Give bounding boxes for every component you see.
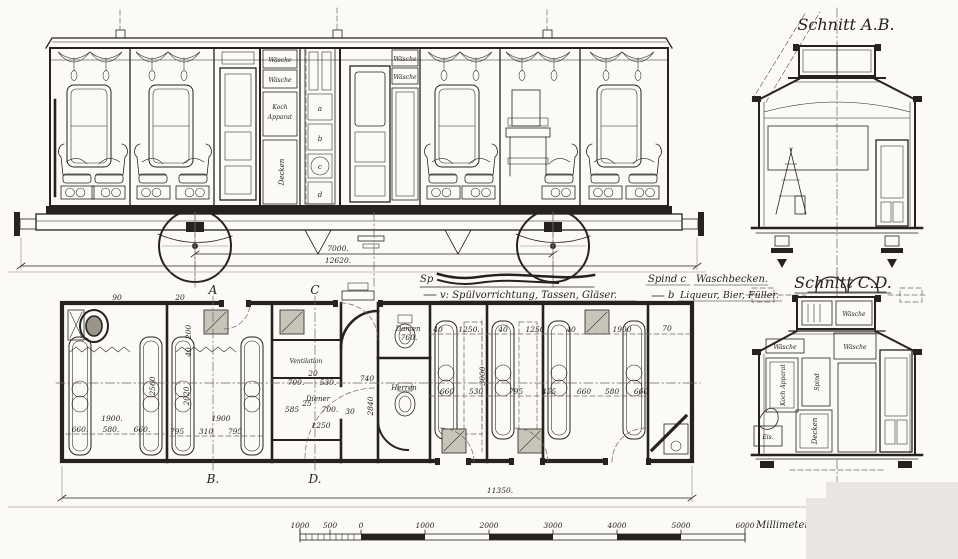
dim: 795 [509,387,524,396]
dim: 2840 [366,396,375,416]
scale-label: 500 [323,521,338,530]
scale-label: 0 [359,521,364,530]
plan-sofa [623,321,645,439]
dim: 660 [577,387,592,396]
cd-label-waesche2: Wäsche [843,344,867,351]
cd-label-spind: Spind [814,373,821,391]
curtain-lamp [136,52,200,81]
dim: 530. [320,378,337,387]
curtain-lamp [590,52,654,81]
plan-table [442,429,466,453]
shelf-stack [838,363,876,452]
armchair [542,144,577,199]
legend-line2: v: Spülvorrichtung, Tassen, Gläser. [440,290,617,301]
dim: 580. [103,425,120,434]
legend-right2b: Liqueur, Bier, Füller. [679,290,779,301]
locker-letter: b [318,135,323,143]
plan-sofa [241,337,263,455]
interior-door [220,68,256,200]
buffer-left [14,212,36,236]
locker-letter: c [318,163,322,171]
plan-table [518,429,542,453]
window [597,85,641,167]
ladder [776,148,806,214]
scale-unit: Millimeter [755,520,810,531]
armchair [462,144,497,199]
side-elevation-view: Wäsche Wäsche Koch Apparat Decken a b c … [8,8,706,290]
dim: 3000 [478,366,487,385]
armchair [176,144,211,199]
buffer-front-right [881,236,903,268]
section-ab-title: Schnitt A.B. [797,15,894,34]
curved-partition [341,311,378,348]
curtain-lamp [58,52,122,81]
dim: 40 [184,347,193,358]
dim: 700. [322,405,339,414]
dim: 2020 [182,386,191,406]
legend-right1b: Waschbecken. [696,274,768,285]
room-label-herren: Herren [390,384,417,392]
cabinet-label: Wäsche [268,77,292,84]
dim: 2560 [148,376,157,396]
railway-car-engineering-drawing: Wäsche Wäsche Koch Apparat Decken a b c … [0,0,958,559]
scale-label: 5000 [671,521,690,530]
scale-label: 4000 [606,521,626,530]
cabinet-label: Wäsche [393,74,417,81]
dim: 1250 [525,325,544,334]
entrance-door [350,66,390,202]
locker-letter: d [318,191,323,199]
scan-shadow-edge [826,482,958,559]
dim: 20 [174,293,185,302]
cd-label-waesche-small: Wäsche [773,344,797,351]
legend-scribble [438,274,594,278]
plan-sofa [69,337,91,455]
window [435,85,479,167]
locker-letter: a [318,105,322,113]
dim: 660 [634,387,649,396]
dim: 1250. [458,325,479,334]
dim-plan-overall: 11350. [487,486,513,495]
dim: 90 [112,293,122,302]
dim: 40 [432,325,443,334]
cabinet-label: Wäsche [268,57,292,64]
elevation-dimensions: 7000. 12620. [8,238,706,272]
window [67,85,111,167]
dim: 660 [440,387,455,396]
dim: 795 [170,427,185,436]
curtain-lamp [428,52,492,81]
berth-hatch [768,126,868,170]
washstand [506,52,570,176]
dim: 660. [72,425,89,434]
dim: 1900 [211,414,230,423]
section-mark-b: B. [206,472,220,486]
armchair [92,144,127,199]
plan-sofa [548,321,570,439]
dim: 70 [662,324,672,333]
room-label-damen: Damen [394,325,421,333]
dim: 25 [301,399,312,408]
legend-right1a: Spind c [648,274,686,285]
dim: 200 [184,325,193,341]
dim: 660. [134,425,151,434]
dim: 580 [605,387,620,396]
cabinet-label: Koch [271,104,287,111]
window [149,85,193,167]
plan-table [204,310,228,334]
cd-label-eis: Eis. [761,434,773,441]
armchair [626,144,661,199]
curtain-lamp [506,52,570,81]
cd-label-decken: Decken [811,417,819,445]
section-mark-d: D. [307,472,321,486]
scale-label: 2000 [478,521,498,530]
floor-plan-view: A C B. D. Ventilation Diener Damen 760. … [8,283,950,507]
section-cd-title: Schnitt C.D. [794,273,892,292]
dim: 40 [497,325,508,334]
plan-sofa [492,321,514,439]
section-cd-view: Schnitt C.D. Wäsche Wäsche Wäsche Koch A… [752,268,922,490]
dim: 1900. [101,414,122,423]
dim: 1250 [311,421,330,430]
scale-label: 1000 [415,521,434,530]
dim: 310 [199,427,214,436]
cd-label-koch: Koch Apparat [780,364,787,407]
dim-wheelbase: 7000. [327,244,348,253]
dim-damen: 760. [401,333,418,342]
plan-sofa [435,321,457,439]
section-ab-view: Schnitt A.B. [746,8,928,302]
cabinet-label: Apparat [267,114,293,121]
scale-bar: 1000 500 0 1000 2000 3000 4000 5000 6000… [290,520,810,542]
cd-label-waesche1: Wäsche [842,311,866,318]
dim: 20 [307,369,318,378]
armchair [425,144,460,199]
plan-table [280,310,304,334]
buffer-right [682,212,704,236]
plan-table [585,310,609,334]
scale-label: 3000 [543,521,562,530]
dim: 585 [285,405,300,414]
section-mark-a: A [208,283,218,297]
buffer-front-left [771,236,793,268]
dim: 700. [288,378,305,387]
dim: 530 [469,387,484,396]
cabinet-label: Wäsche [393,56,417,63]
armchair [587,144,622,199]
dim: 1900 [612,325,631,334]
armchair [135,144,170,199]
dim: 40 [565,325,576,334]
legend-sp: Sp [420,274,434,285]
dim: 455 [541,387,557,396]
section-mark-c: C [310,283,319,297]
dim-overall-length: 12620. [325,256,351,265]
armchair [59,144,94,199]
drawing-sheet: Wäsche Wäsche Koch Apparat Decken a b c … [0,0,958,559]
dim: 30 [345,407,355,416]
room-label-ventilation: Ventilation [290,358,323,365]
legend-right2a: b [668,290,674,301]
cabinet-column: Wäsche Wäsche Koch Apparat Decken [263,50,297,204]
dim: 740 [360,374,375,383]
legend: Sp v: Spülvorrichtung, Tassen, Gläser. S… [420,274,782,301]
cabinet-label: Decken [278,158,286,186]
sole-bar [46,206,672,214]
wardrobe-column: Wäsche Wäsche [392,50,418,200]
stove [68,310,108,342]
dim: 795 [228,427,243,436]
locker-column: a b c d [305,48,335,204]
